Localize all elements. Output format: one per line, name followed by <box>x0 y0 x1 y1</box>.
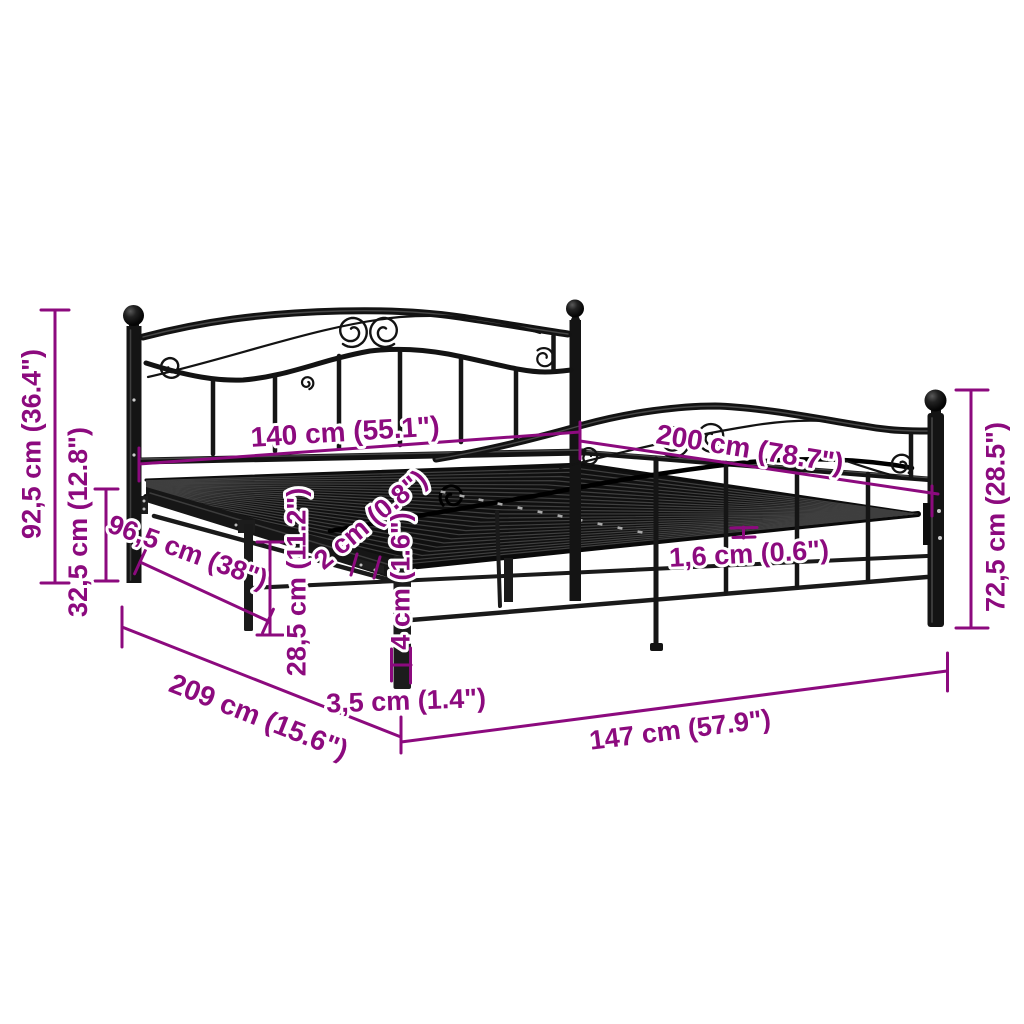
svg-text:4 cm (1.6"): 4 cm (1.6") <box>386 512 416 649</box>
svg-text:147 cm (57.9"): 147 cm (57.9") <box>588 704 773 756</box>
svg-text:28,5 cm (11.2"): 28,5 cm (11.2") <box>282 488 312 676</box>
svg-text:140 cm (55.1"): 140 cm (55.1") <box>250 410 441 452</box>
svg-text:92,5 cm (36.4"): 92,5 cm (36.4") <box>17 349 47 539</box>
svg-text:72,5 cm (28.5"): 72,5 cm (28.5") <box>981 422 1011 612</box>
svg-text:32,5 cm (12.8"): 32,5 cm (12.8") <box>63 427 93 617</box>
svg-text:3,5 cm (1.4"): 3,5 cm (1.4") <box>326 683 487 719</box>
